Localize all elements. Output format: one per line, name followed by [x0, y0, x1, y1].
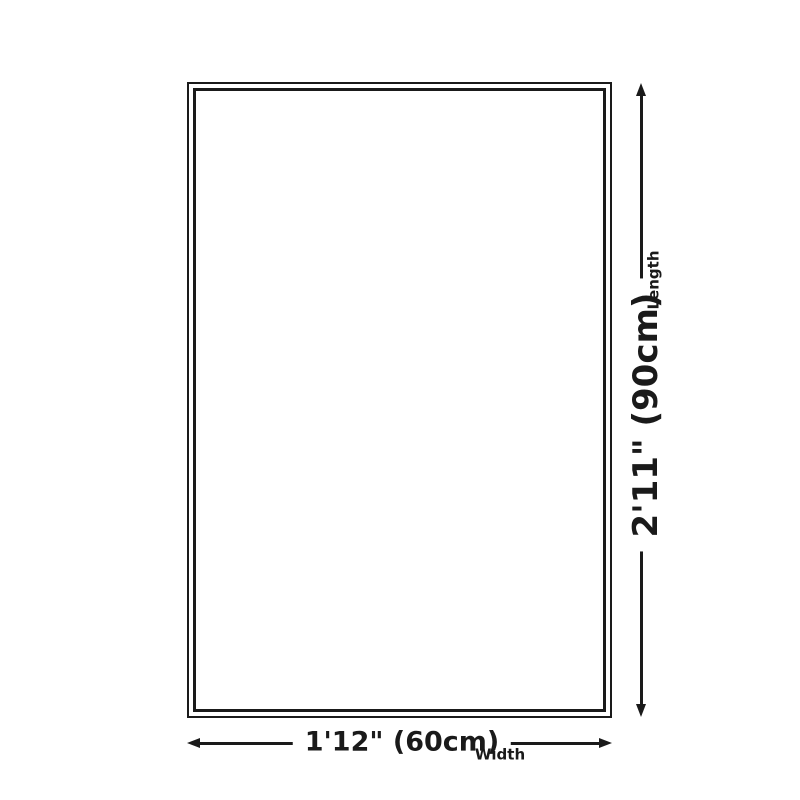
length-value: 2'11" (90cm) [629, 279, 663, 552]
length-label: Length [647, 251, 662, 310]
rug-inner-outline [193, 88, 606, 712]
width-label: Width [475, 748, 525, 763]
arrow-down-icon [636, 704, 646, 717]
arrow-right-icon [599, 738, 612, 748]
rug-size-diagram: 2'11" (90cm) Length 1'12" (60cm) Width [0, 0, 800, 800]
rug-outline [187, 82, 612, 718]
